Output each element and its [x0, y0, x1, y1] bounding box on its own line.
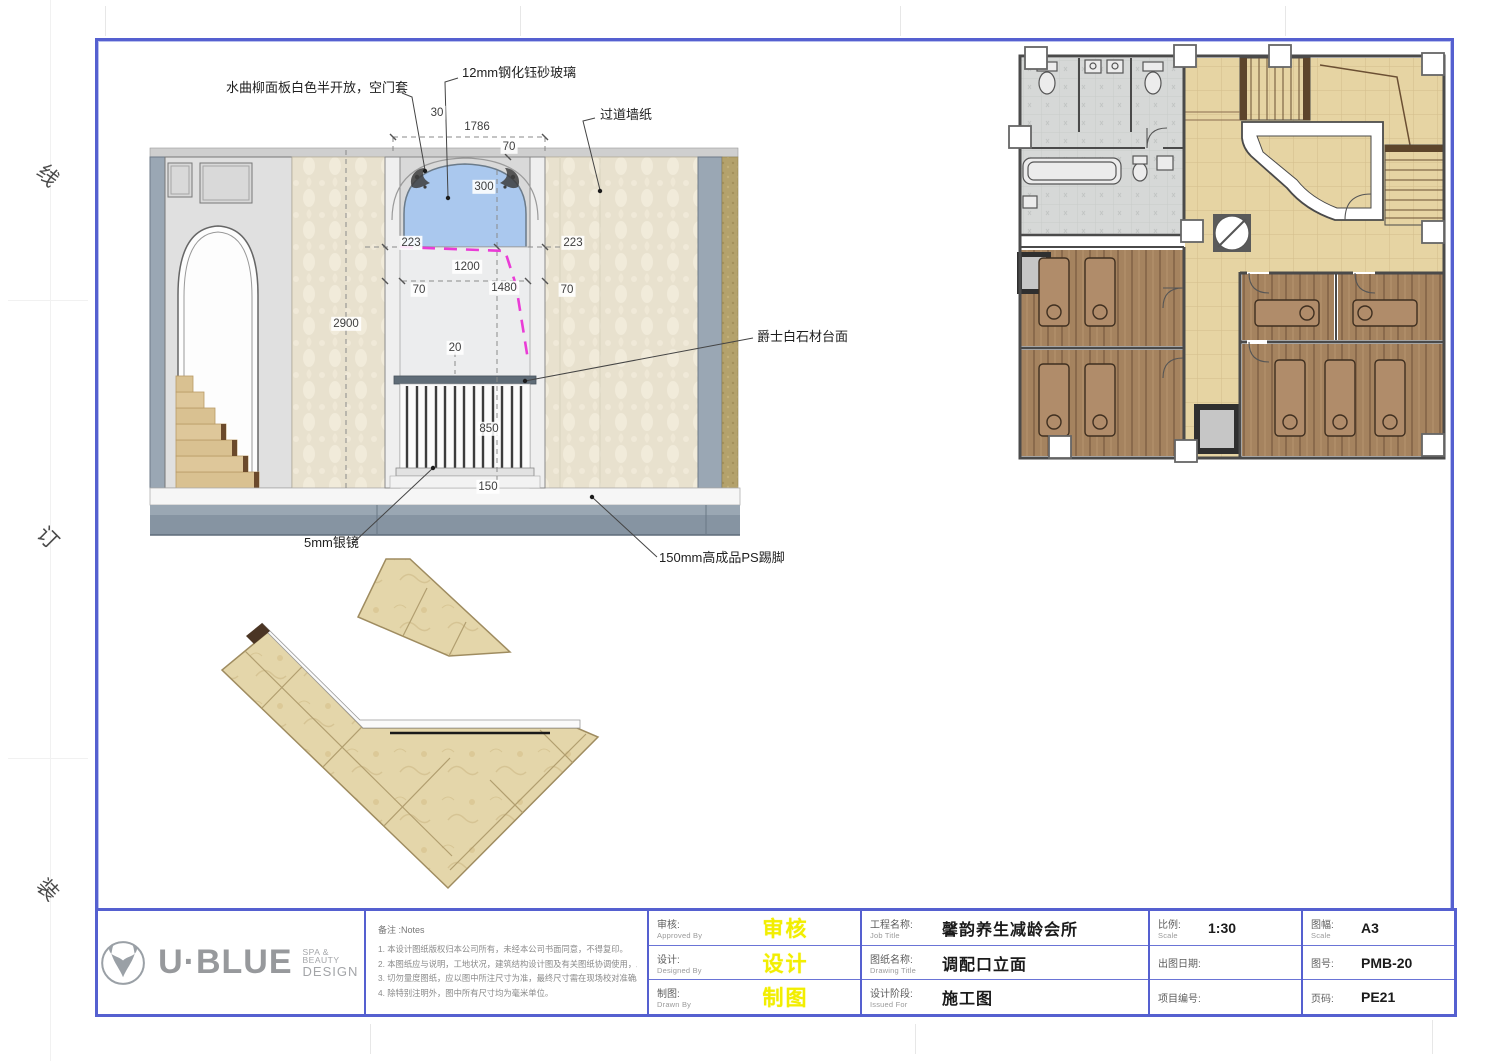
drawing-title-value: 调配口立面: [942, 951, 1027, 975]
sheet-size-row: 图幅: Scale A3: [1303, 911, 1454, 945]
dim-label: 70: [501, 140, 518, 154]
drawn-by-label-en: Drawn By: [657, 1000, 719, 1009]
drawing-title-label-en: Drawing Title: [870, 966, 932, 975]
approved-by-label-cn: 审核:: [657, 916, 719, 931]
dim-label: 223: [399, 236, 422, 250]
fold-tick: [520, 6, 521, 36]
dim-label: 850: [477, 422, 500, 436]
issued-for-row: 设计阶段: Issued For 施工图: [862, 979, 1148, 1014]
tile-layout-3d: [200, 550, 620, 900]
stone-counter: [394, 376, 536, 384]
dim-label: 223: [561, 236, 584, 250]
meta-left-column: 比例: Scale 1:30 出图日期: 项目编号:: [1150, 911, 1303, 1014]
sheet-size-value: A3: [1361, 920, 1379, 936]
approved-by-row: 审核: Approved By 审核: [649, 911, 860, 945]
personnel-column: 审核: Approved By 审核 设计: Designed By 设计 制图…: [649, 911, 862, 1014]
drawing-title-label-cn: 图纸名称:: [870, 951, 932, 966]
note-line: 3. 切勿量度图纸，应以图中所注尺寸为准，最终尺寸需在现场校对准确。: [378, 971, 637, 986]
page: { "binding_marks": ["线", "订", "装"], "col…: [0, 0, 1500, 1061]
wallpaper-right: [545, 157, 698, 488]
scale-label-cn: 比例:: [1158, 916, 1198, 931]
job-title-row: 工程名称: Job Title 馨韵养生减龄会所: [862, 911, 1148, 945]
note-line: 4. 除特别注明外，图中所有尺寸均为毫米单位。: [378, 986, 637, 1001]
page-no-value: PE21: [1361, 989, 1395, 1005]
elevation-drawing: [140, 60, 820, 580]
annotation-counter: 爵士白石材台面: [757, 330, 848, 344]
railing: [390, 384, 540, 488]
annotation-wallpaper: 过道墙纸: [600, 108, 652, 122]
issue-date-row: 出图日期:: [1150, 945, 1301, 980]
scale-label-en: Scale: [1158, 931, 1198, 940]
project-no-row: 项目编号:: [1150, 979, 1301, 1014]
side-wall-strip: [722, 157, 738, 488]
job-title-label-cn: 工程名称:: [870, 916, 932, 931]
tile-strip-upper: [358, 559, 510, 684]
drawn-by-row: 制图: Drawn By 制图: [649, 979, 860, 1014]
dim-label: 30: [429, 106, 446, 120]
annotation-mirror: 5mm银镜: [304, 536, 359, 550]
ublue-logo-icon: [98, 936, 148, 990]
wall-top-band: [150, 148, 738, 157]
issued-for-label-en: Issued For: [870, 1000, 932, 1009]
drawing-no-label-cn: 图号:: [1311, 955, 1351, 970]
title-block: U·BLUE SPA & BEAUTY DESIGN 备注 :Notes 1. …: [95, 908, 1457, 1017]
pilaster-right: [698, 157, 722, 488]
tagline-line1: SPA & BEAUTY: [303, 948, 364, 965]
sheet-size-label-en: Scale: [1311, 931, 1351, 940]
dim-label: 1200: [452, 260, 482, 274]
shower-cell: [1194, 404, 1240, 454]
dim-label: 2900: [331, 317, 361, 331]
fold-tick: [1432, 1020, 1433, 1054]
skirting-band: [150, 488, 740, 505]
column-symbol: [1213, 214, 1251, 252]
designed-by-row: 设计: Designed By 设计: [649, 945, 860, 980]
notes-cell: 备注 :Notes 1. 本设计图纸版权归本公司所有，未经本公司书面同意，不得复…: [366, 911, 649, 1014]
stair-run-right: [1385, 145, 1443, 225]
sheet-size-label-cn: 图幅:: [1311, 916, 1351, 931]
scale-value: 1:30: [1208, 920, 1236, 936]
dim-label: 1786: [462, 120, 492, 134]
annotation-skirting: 150mm高成品PS踢脚: [659, 551, 785, 565]
tagline-line2: DESIGN: [303, 965, 364, 978]
fold-tick-h: [8, 300, 88, 301]
fold-tick: [370, 1024, 371, 1054]
job-title-value: 馨韵养生减龄会所: [942, 916, 1078, 940]
note-line: 1. 本设计图纸版权归本公司所有，未经本公司书面同意，不得复印。: [378, 942, 637, 957]
page-no-row: 页码: PE21: [1303, 979, 1454, 1014]
designed-by-label-en: Designed By: [657, 966, 719, 975]
designed-by-stamp: 设计: [719, 948, 852, 978]
binding-mark-zhuang: 装: [30, 871, 66, 907]
floor-plan: [1005, 42, 1460, 467]
drawing-no-row: 图号: PMB-20: [1303, 945, 1454, 980]
scale-row: 比例: Scale 1:30: [1150, 911, 1301, 945]
dim-label: 1480: [489, 281, 519, 295]
issued-for-label-cn: 设计阶段:: [870, 985, 932, 1000]
drawing-title-row: 图纸名称: Drawing Title 调配口立面: [862, 945, 1148, 980]
binding-mark-line: 线: [30, 157, 66, 193]
floor-band: [150, 505, 740, 535]
issue-date-label-cn: 出图日期:: [1158, 955, 1201, 970]
tile-corridor-v: [222, 623, 598, 888]
note-line: 2. 本图纸应与说明，工地状况，建筑结构设计图及有关图纸协调使用，发现任何差异请…: [378, 957, 637, 972]
annotation-glass: 12mm钢化钰砂玻璃: [462, 66, 576, 80]
brand-name: U·BLUE: [158, 943, 292, 982]
annotation-wood-panel: 水曲柳面板白色半开放，空门套: [226, 81, 408, 95]
dim-label: 70: [559, 283, 576, 297]
drawing-info-column: 工程名称: Job Title 馨韵养生减龄会所 图纸名称: Drawing T…: [862, 911, 1150, 1014]
approved-by-label-en: Approved By: [657, 931, 719, 940]
arch-wall-with-stairs: [165, 157, 292, 488]
company-logo-cell: U·BLUE SPA & BEAUTY DESIGN: [98, 911, 366, 1014]
drawing-no-value: PMB-20: [1361, 955, 1412, 971]
page-no-label-cn: 页码:: [1311, 990, 1351, 1005]
fold-tick-h: [8, 758, 88, 759]
fold-tick: [1285, 6, 1286, 36]
fold-tick: [105, 6, 106, 36]
drawn-by-stamp: 制图: [719, 982, 852, 1012]
fold-tick: [900, 6, 901, 36]
meta-right-column: 图幅: Scale A3 图号: PMB-20 页码: PE21: [1303, 911, 1454, 1014]
dim-label: 70: [411, 283, 428, 297]
dim-label: 20: [447, 341, 464, 355]
pilaster-left: [150, 157, 165, 488]
project-no-label-cn: 项目编号:: [1158, 990, 1201, 1005]
brand-tagline: SPA & BEAUTY DESIGN: [303, 948, 364, 978]
issued-for-value: 施工图: [942, 985, 993, 1009]
designed-by-label-cn: 设计:: [657, 951, 719, 966]
dim-label: 150: [476, 480, 499, 494]
drawn-by-label-cn: 制图:: [657, 985, 719, 1000]
approved-by-stamp: 审核: [719, 913, 852, 943]
dim-label: 300: [472, 180, 495, 194]
notes-heading: 备注 :Notes: [378, 923, 637, 936]
fold-tick: [915, 1024, 916, 1054]
binding-mark-ding: 订: [30, 519, 66, 555]
job-title-label-en: Job Title: [870, 931, 932, 940]
